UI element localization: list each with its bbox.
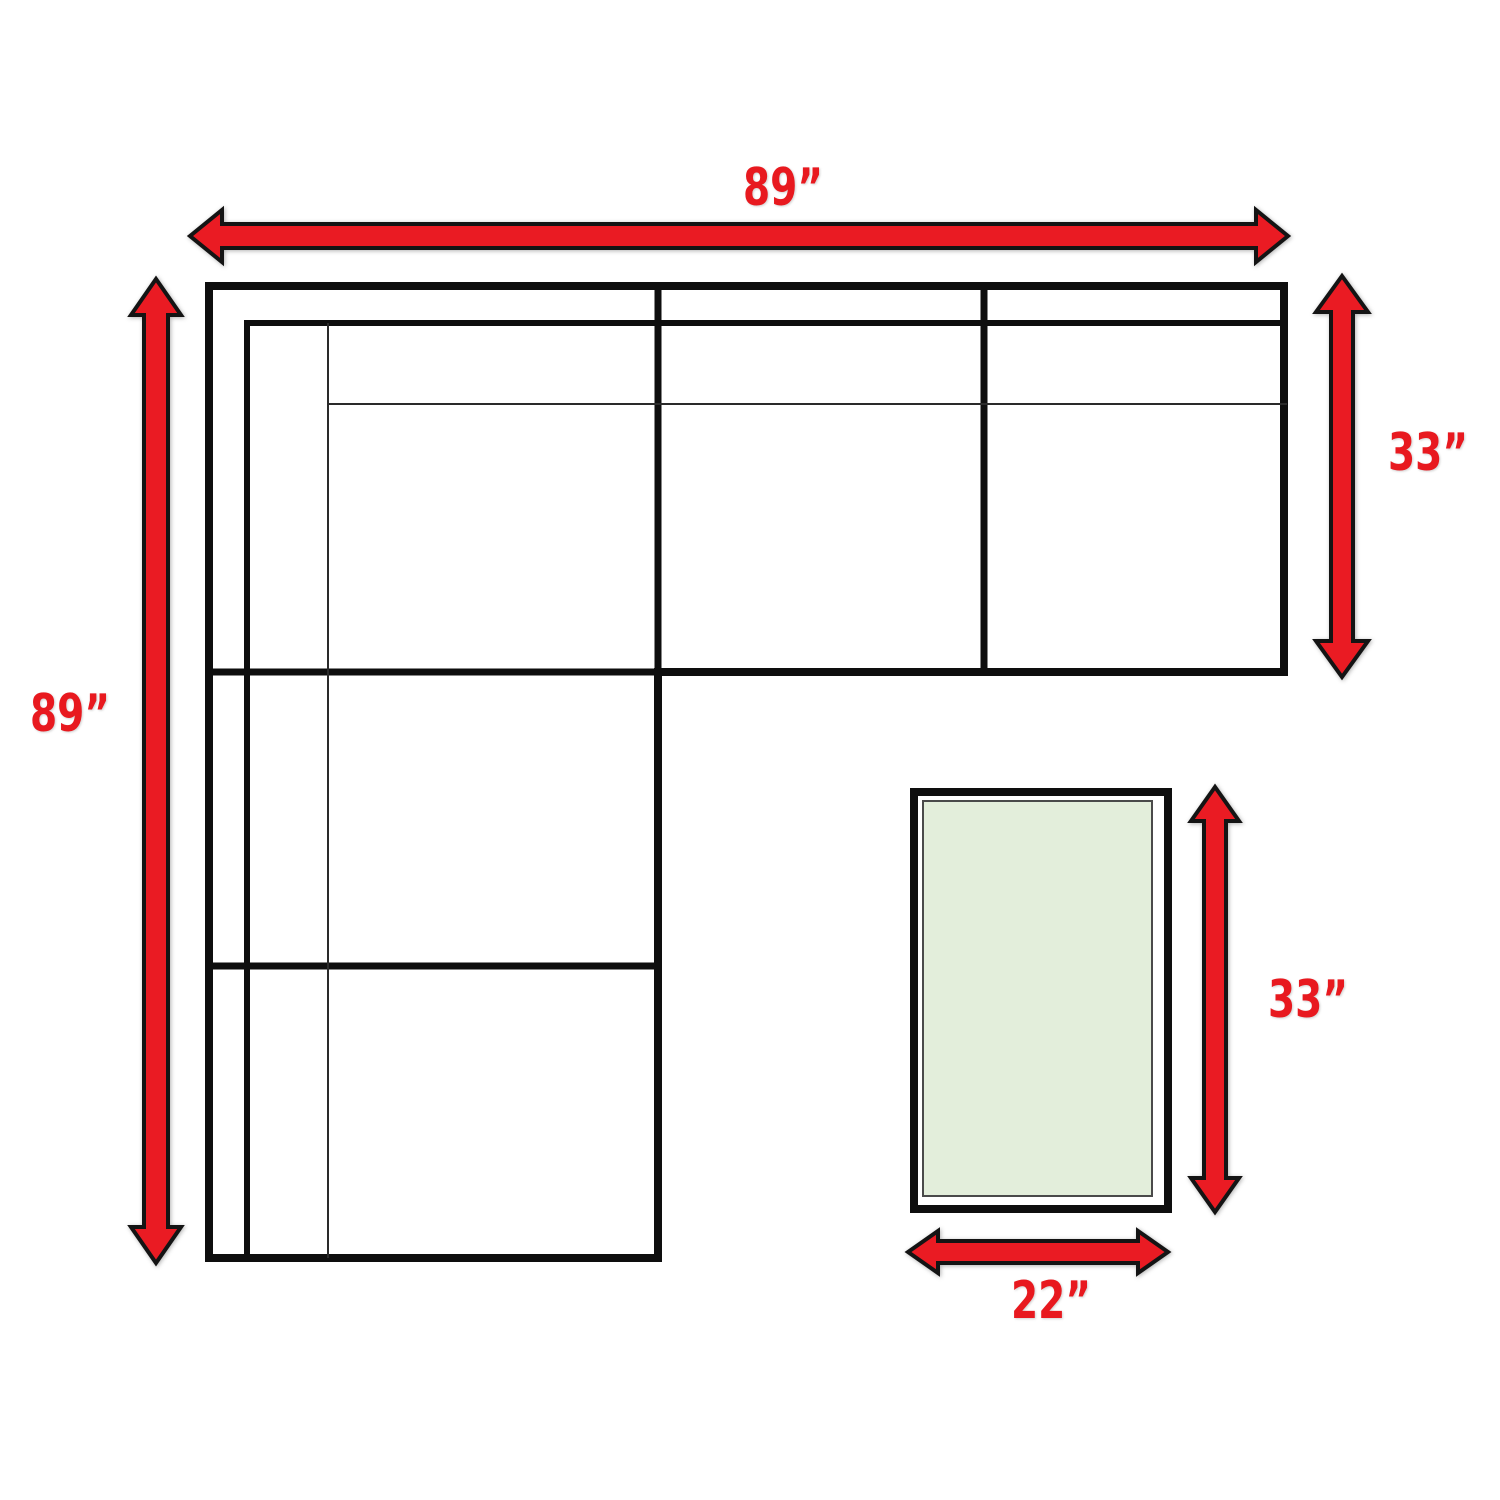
sectional-dimension-diagram: 89” 89” 33” 33” 22” bbox=[0, 0, 1500, 1500]
sofa-width-arrow bbox=[190, 210, 1288, 262]
sofa-width-label: 89” bbox=[743, 158, 823, 218]
ottoman-length-arrow bbox=[1191, 787, 1239, 1212]
sofa-depth-label: 33” bbox=[1388, 423, 1468, 483]
sofa-depth-arrow bbox=[1316, 276, 1368, 677]
ottoman-width-label: 22” bbox=[1011, 1271, 1091, 1331]
ottoman-top-surface bbox=[923, 801, 1152, 1196]
ottoman-length-label: 33” bbox=[1268, 970, 1348, 1030]
sofa-height-arrow bbox=[131, 279, 181, 1263]
dimension-diagram-canvas: 89” 89” 33” 33” 22” bbox=[0, 0, 1500, 1500]
ottoman-width-arrow bbox=[908, 1231, 1168, 1273]
sofa-height-label: 89” bbox=[30, 684, 110, 744]
